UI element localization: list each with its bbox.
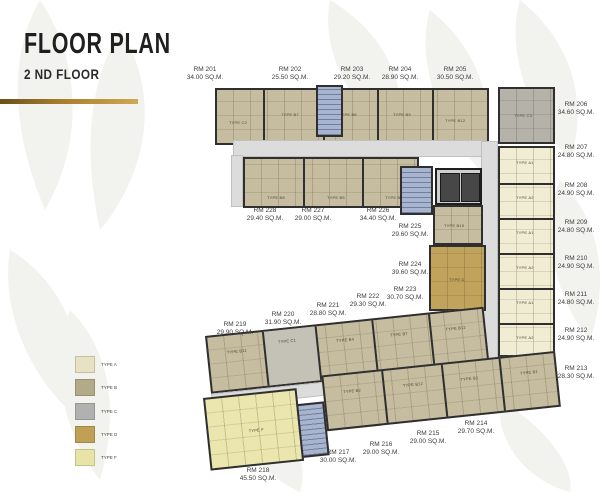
unit-gray-c1	[262, 326, 322, 385]
room-area: 31.90 SQ.M.	[265, 319, 302, 327]
room-id: RM 219	[217, 321, 254, 329]
room-id: RM 216	[363, 441, 400, 449]
unit-type-label: TYPE B9	[393, 112, 411, 117]
room-label-201: RM 20134.00 SQ.M.	[187, 66, 224, 81]
wall-separator	[500, 253, 553, 255]
room-area: 30.00 SQ.M.	[320, 457, 357, 465]
legend-swatch-type-d	[75, 426, 95, 443]
gold-divider-bar	[0, 99, 138, 104]
room-label-209: RM 20924.80 SQ.M.	[558, 219, 595, 234]
unit-type-label: TYPE B5	[327, 195, 345, 200]
unit-type-label: TYPE A2	[516, 195, 534, 200]
room-label-216: RM 21629.00 SQ.M.	[363, 441, 400, 456]
room-id: RM 217	[320, 449, 357, 457]
legend-swatch-type-a	[75, 356, 95, 373]
floor-plan-page: FLOOR PLAN 2 ND FLOOR TYPE C2 TYPE B7 TY…	[0, 0, 600, 492]
room-id: RM 213	[558, 365, 595, 373]
legend-label: TYPE F	[101, 455, 117, 460]
room-id: RM 207	[558, 144, 595, 152]
room-area: 29.70 SQ.M.	[458, 428, 495, 436]
room-area: 45.50 SQ.M.	[240, 475, 277, 483]
unit-type-label: TYPE B1	[520, 369, 538, 376]
wall-separator	[499, 359, 506, 411]
top-wing-units: TYPE C2 TYPE B7 TYPE B6 TYPE B9 TYPE B12	[215, 88, 489, 145]
room-label-207: RM 20724.80 SQ.M.	[558, 144, 595, 159]
room-id: RM 212	[558, 327, 595, 335]
room-label-218: RM 21845.50 SQ.M.	[240, 467, 277, 482]
unit-type-label: TYPE B4	[336, 336, 354, 343]
room-id: RM 202	[272, 66, 309, 74]
room-id: RM 222	[350, 293, 387, 301]
elevator-cab	[461, 173, 480, 202]
room-label-223: RM 22330.70 SQ.M.	[387, 286, 424, 301]
unit-rm225: TYPE B10	[433, 205, 483, 245]
unit-type-label: TYPE D	[449, 277, 465, 282]
unit-type-label: TYPE B7	[390, 331, 408, 338]
legend-label: TYPE C	[101, 409, 117, 414]
wall-separator	[362, 159, 364, 206]
room-label-228: RM 22829.40 SQ.M.	[247, 207, 284, 222]
room-label-227: RM 22729.00 SQ.M.	[295, 207, 332, 222]
room-area: 28.90 SQ.M.	[382, 74, 419, 82]
page-title: FLOOR PLAN	[24, 28, 171, 61]
room-label-212: RM 21224.90 SQ.M.	[558, 327, 595, 342]
room-id: RM 206	[558, 101, 595, 109]
room-id: RM 225	[392, 223, 429, 231]
room-area: 29.00 SQ.M.	[410, 438, 447, 446]
unit-type-label: TYPE B2	[460, 375, 478, 382]
elevator-core	[435, 168, 482, 205]
unit-type-label: TYPE B12	[403, 381, 424, 388]
stairwell-core	[400, 166, 433, 215]
room-id: RM 218	[240, 467, 277, 475]
wall-separator	[500, 288, 553, 290]
room-label-219: RM 21929.90 SQ.M.	[217, 321, 254, 336]
unit-type-label: TYPE F	[248, 427, 264, 434]
unit-type-label: TYPE A1	[516, 230, 534, 235]
corridor-main	[233, 140, 483, 157]
room-area: 29.00 SQ.M.	[295, 215, 332, 223]
second-row-units: TYPE B8 TYPE B5 TYPE B4	[243, 157, 419, 208]
room-area: 30.50 SQ.M.	[437, 74, 474, 82]
unit-type-label: TYPE B2	[343, 387, 361, 394]
wall-separator	[371, 320, 379, 374]
wall-separator	[381, 371, 388, 423]
room-id: RM 223	[387, 286, 424, 294]
legend-swatch-type-b	[75, 379, 95, 396]
wall-separator	[263, 90, 265, 143]
wall-separator	[303, 159, 305, 206]
unit-type-label: TYPE B12	[445, 325, 466, 332]
room-label-206: RM 20634.60 SQ.M.	[558, 101, 595, 116]
unit-type-label: TYPE A2	[516, 335, 534, 340]
legend-label: TYPE B	[101, 385, 117, 390]
room-label-211: RM 21124.80 SQ.M.	[558, 291, 595, 306]
room-label-214: RM 21429.70 SQ.M.	[458, 420, 495, 435]
room-label-224: RM 22439.60 SQ.M.	[392, 261, 429, 276]
unit-rm206: TYPE C3	[498, 87, 555, 144]
legend-swatch-type-c	[75, 403, 95, 420]
unit-type-label: TYPE B7	[281, 112, 299, 117]
legend-swatch-type-f	[75, 449, 95, 466]
room-label-221: RM 22128.80 SQ.M.	[310, 302, 347, 317]
room-area: 24.90 SQ.M.	[558, 190, 595, 198]
room-id: RM 204	[382, 66, 419, 74]
room-label-203: RM 20329.20 SQ.M.	[334, 66, 371, 81]
unit-type-label: TYPE B12	[445, 118, 465, 123]
room-area: 34.40 SQ.M.	[360, 215, 397, 223]
room-id: RM 210	[558, 255, 595, 263]
page-subtitle: 2 ND FLOOR	[24, 66, 99, 82]
room-area: 29.90 SQ.M.	[217, 329, 254, 337]
room-area: 24.80 SQ.M.	[558, 227, 595, 235]
unit-type-label: TYPE B10	[444, 223, 464, 228]
unit-type-label: TYPE C3	[514, 113, 532, 118]
unit-type-label: TYPE A1	[516, 160, 534, 165]
room-id: RM 209	[558, 219, 595, 227]
unit-rm218: TYPE F	[203, 388, 304, 470]
room-id: RM 227	[295, 207, 332, 215]
room-id: RM 208	[558, 182, 595, 190]
room-area: 28.30 SQ.M.	[558, 373, 595, 381]
room-area: 29.60 SQ.M.	[392, 231, 429, 239]
room-area: 30.70 SQ.M.	[387, 294, 424, 302]
room-id: RM 205	[437, 66, 474, 74]
room-area: 24.90 SQ.M.	[558, 263, 595, 271]
wall-separator	[500, 323, 553, 325]
room-area: 28.80 SQ.M.	[310, 310, 347, 318]
room-area: 24.80 SQ.M.	[558, 152, 595, 160]
corridor-stub-left	[231, 155, 243, 207]
room-area: 39.60 SQ.M.	[392, 269, 429, 277]
room-area: 29.20 SQ.M.	[334, 74, 371, 82]
room-label-226: RM 22634.40 SQ.M.	[360, 207, 397, 222]
wall-separator	[428, 314, 436, 368]
wall-separator	[500, 218, 553, 220]
room-id: RM 220	[265, 311, 302, 319]
unit-type-label: TYPE A2	[516, 265, 534, 270]
unit-type-label: TYPE B8	[267, 195, 285, 200]
room-label-210: RM 21024.90 SQ.M.	[558, 255, 595, 270]
room-label-204: RM 20428.90 SQ.M.	[382, 66, 419, 81]
wall-separator	[500, 183, 553, 185]
room-area: 29.00 SQ.M.	[363, 449, 400, 457]
stairwell-top	[316, 85, 343, 137]
unit-rm224-rm223: TYPE D	[429, 245, 486, 311]
room-area: 34.00 SQ.M.	[187, 74, 224, 82]
unit-type-label: TYPE A1	[516, 300, 534, 305]
room-label-217: RM 21730.00 SQ.M.	[320, 449, 357, 464]
room-id: RM 215	[410, 430, 447, 438]
unit-type-label: TYPE B11	[227, 348, 247, 355]
room-label-225: RM 22529.60 SQ.M.	[392, 223, 429, 238]
room-id: RM 221	[310, 302, 347, 310]
room-id: RM 224	[392, 261, 429, 269]
room-label-215: RM 21529.00 SQ.M.	[410, 430, 447, 445]
legend-label: TYPE D	[101, 432, 117, 437]
room-area: 34.60 SQ.M.	[558, 109, 595, 117]
room-id: RM 211	[558, 291, 595, 299]
room-id: RM 203	[334, 66, 371, 74]
room-area: 29.30 SQ.M.	[350, 301, 387, 309]
wall-separator	[377, 90, 379, 143]
unit-type-label: TYPE C2	[229, 120, 247, 125]
wall-separator	[432, 90, 434, 143]
wall-separator	[441, 365, 448, 417]
room-label-208: RM 20824.90 SQ.M.	[558, 182, 595, 197]
room-area: 24.90 SQ.M.	[558, 335, 595, 343]
room-label-202: RM 20225.50 SQ.M.	[272, 66, 309, 81]
elevator-cab	[440, 173, 460, 202]
room-id: RM 228	[247, 207, 284, 215]
room-label-220: RM 22031.90 SQ.M.	[265, 311, 302, 326]
room-label-213: RM 21328.30 SQ.M.	[558, 365, 595, 380]
room-area: 25.50 SQ.M.	[272, 74, 309, 82]
room-id: RM 201	[187, 66, 224, 74]
room-label-205: RM 20530.50 SQ.M.	[437, 66, 474, 81]
right-column-units: TYPE A1 TYPE A2 TYPE A1 TYPE A2 TYPE A1 …	[498, 146, 555, 357]
room-area: 24.80 SQ.M.	[558, 299, 595, 307]
room-area: 29.40 SQ.M.	[247, 215, 284, 223]
room-id: RM 226	[360, 207, 397, 215]
room-label-222: RM 22229.30 SQ.M.	[350, 293, 387, 308]
legend-label: TYPE A	[101, 362, 117, 367]
room-id: RM 214	[458, 420, 495, 428]
